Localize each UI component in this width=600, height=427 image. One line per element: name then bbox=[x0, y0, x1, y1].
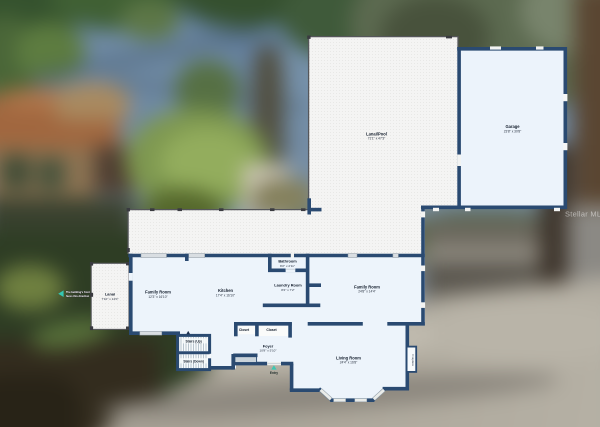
svg-text:24'8" x 14'4": 24'8" x 14'4" bbox=[358, 290, 375, 294]
svg-text:Closet: Closet bbox=[239, 328, 250, 332]
svg-text:71'1" x 47'3": 71'1" x 47'3" bbox=[368, 137, 385, 141]
svg-text:faces this direction: faces this direction bbox=[66, 294, 90, 298]
svg-text:Kitchen: Kitchen bbox=[218, 288, 234, 293]
svg-text:24'4" x 16'8": 24'4" x 16'8" bbox=[340, 361, 357, 365]
svg-text:17'4" x 16'10": 17'4" x 16'10" bbox=[216, 293, 235, 297]
svg-text:10'8" x 5'10": 10'8" x 5'10" bbox=[260, 349, 277, 353]
svg-text:7'10" x 14'0": 7'10" x 14'0" bbox=[102, 297, 119, 301]
svg-text:8'2" x 2'11": 8'2" x 2'11" bbox=[280, 264, 295, 268]
svg-text:Stellar MLS: Stellar MLS bbox=[565, 210, 600, 219]
svg-text:12'3" x 16'10": 12'3" x 16'10" bbox=[148, 295, 167, 299]
svg-text:Living Room: Living Room bbox=[336, 355, 361, 360]
svg-text:Fireplace: Fireplace bbox=[411, 355, 415, 367]
svg-text:Stairs (Down): Stairs (Down) bbox=[183, 359, 204, 363]
svg-text:Family Room: Family Room bbox=[145, 290, 171, 295]
svg-text:Stairs (Up): Stairs (Up) bbox=[186, 339, 202, 343]
svg-text:23'8" x 30'8": 23'8" x 30'8" bbox=[504, 129, 521, 133]
svg-text:Closet: Closet bbox=[266, 328, 277, 332]
svg-text:8'2" x 7'2": 8'2" x 7'2" bbox=[281, 288, 295, 292]
svg-text:The building's front: The building's front bbox=[66, 290, 90, 294]
svg-text:Entry: Entry bbox=[270, 371, 278, 375]
svg-text:Garage: Garage bbox=[505, 124, 520, 129]
svg-text:Family Room: Family Room bbox=[354, 284, 380, 289]
